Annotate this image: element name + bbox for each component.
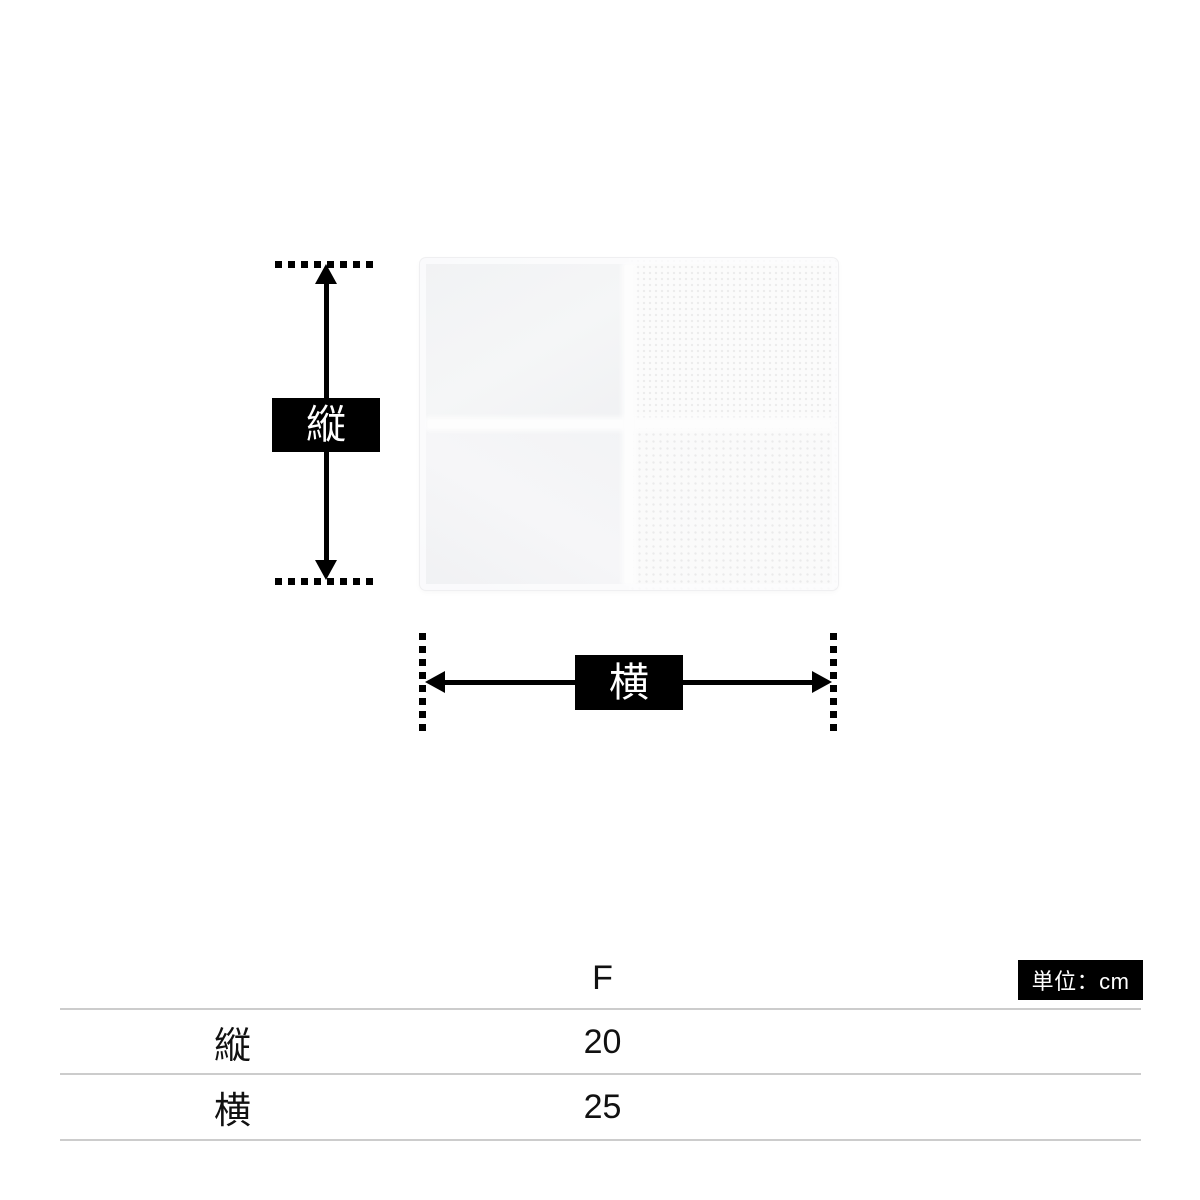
table-divider-top	[60, 1008, 1141, 1010]
width-arrow-left-icon	[425, 671, 445, 693]
table-divider-middle	[60, 1073, 1141, 1075]
width-label-box: 横	[575, 655, 683, 710]
row-label: 横	[60, 1076, 405, 1138]
height-label: 縦	[306, 405, 346, 445]
row-value: 25	[405, 1076, 800, 1138]
towel-quadrant-top-right	[629, 258, 838, 424]
width-label: 横	[609, 663, 649, 703]
height-arrow-up-icon	[315, 264, 337, 284]
height-arrow-down-icon	[315, 560, 337, 580]
width-arrow-right-icon	[812, 671, 832, 693]
row-label: 縦	[60, 1011, 405, 1073]
size-column-header: F	[405, 952, 800, 1004]
towel-quadrant-bottom-left	[420, 424, 629, 590]
towel-vertical-seam	[625, 265, 633, 584]
row-value: 20	[405, 1011, 800, 1073]
height-label-box: 縦	[272, 398, 380, 452]
towel-quadrant-bottom-right	[629, 424, 838, 590]
towel-product-image	[420, 258, 838, 590]
towel-quadrant-top-left	[420, 258, 629, 424]
table-divider-bottom	[60, 1139, 1141, 1141]
unit-badge: 単位：cm	[1018, 960, 1143, 1000]
product-size-chart: 縦 横 F 単位：cm 縦 20 横 25	[0, 0, 1200, 1200]
